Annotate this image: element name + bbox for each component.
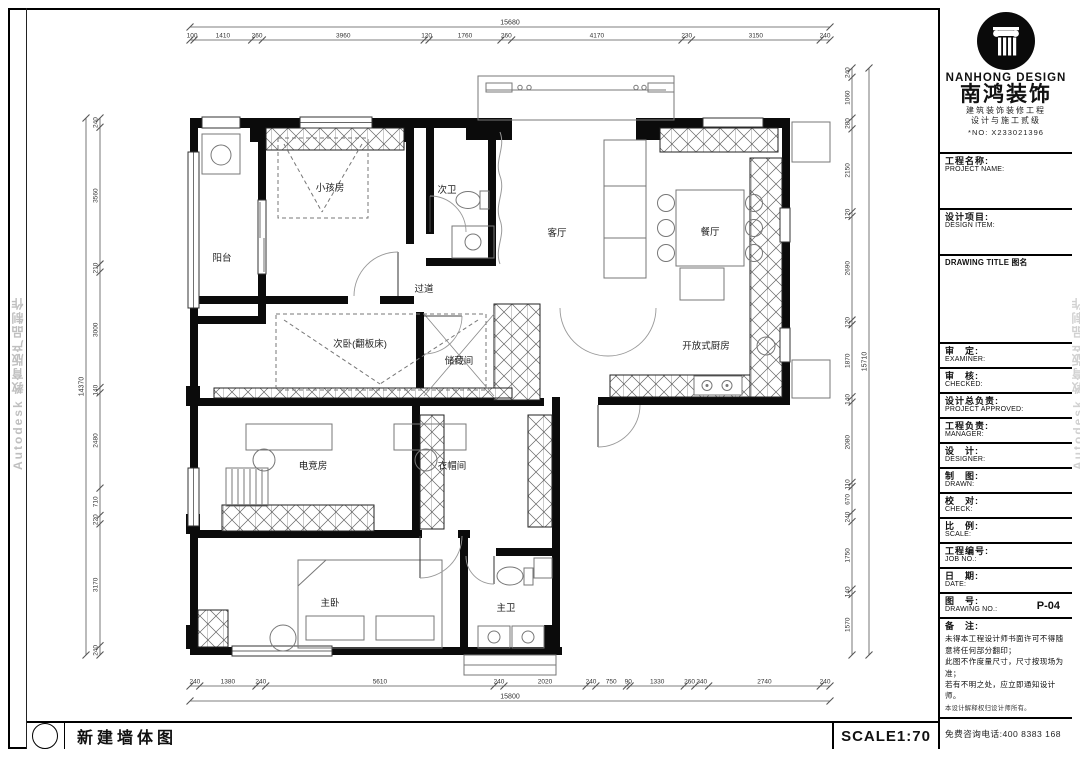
field-check: 校 对: CHECK: [940,494,1072,519]
room-label-bath1: 主卫 [496,602,516,614]
revision-circle-icon [32,723,58,749]
divider [64,723,65,749]
room-label-master: 主卧 [320,597,340,609]
dim-label: 3960 [336,33,351,40]
remarks-line: 未得本工程设计师书面许可不得随意将任何部分翻印； [945,633,1067,656]
remarks-title: 备 注: [945,621,1067,631]
dim-label: 240 [820,679,831,686]
dim-label: 240 [820,33,831,40]
room-label-storage: 储藏间 [445,355,474,367]
dim-label: 240 [845,67,852,78]
sheet-inner-rule [26,8,27,749]
field-label-en: MANAGER: [945,431,1067,439]
field-label-en: PROJECT APPROVED: [945,406,1067,414]
dim-label: 3560 [93,188,100,203]
dim-label: 4170 [590,33,605,40]
dim-label: 2690 [845,261,852,276]
dim-label: 2740 [757,679,772,686]
drawing-title: 新建墙体图 [77,724,832,748]
remarks-block: 备 注: 未得本工程设计师书面许可不得随意将任何部分翻印； 此图不作度量尺寸，尺… [940,619,1072,719]
dim-label: 240 [494,679,505,686]
field-label-en: CHECKED: [945,381,1067,389]
dim-label: 230 [681,33,692,40]
field-designer: 设 计: DESIGNER: [940,444,1072,469]
field-scale: 比 例: SCALE: [940,519,1072,544]
field-drawing-title: DRAWING TITLE 图名 [940,256,1072,344]
room-label-hallway: 过道 [414,283,434,295]
field-label-en: CHECK: [945,506,1067,514]
dim-label: 5610 [373,679,388,686]
dim-label: 2150 [845,163,852,178]
field-project-approved: 设计总负责: PROJECT APPROVED: [940,394,1072,419]
dim-label: 1870 [845,353,852,368]
dim-label: 670 [845,494,852,505]
cert-number: *NO: X233021396 [945,128,1067,137]
floor-plan: 阳台 小孩房 次卫 客厅 餐厅 过道 次卧(翻板床) 储藏间 开放式厨房 电竞房… [0,0,1080,757]
field-design-item: 设计项目: DESIGN ITEM: [940,210,1072,256]
dim-label: 1760 [458,33,473,40]
room-label-gaming: 电竞房 [299,460,328,472]
dim-label: 260 [252,33,263,40]
field-label-cn: 工程名称: [945,156,1067,166]
brand-block: NANHONG DESIGN 南鸿装饰 建筑装饰装修工程 设计与施工贰级 *NO… [940,8,1072,154]
field-checked: 审 核: CHECKED: [940,369,1072,394]
drawing-title-label: DRAWING TITLE 图名 [945,258,1067,267]
bottom-title-bar: 新建墙体图 SCALE1:70 [27,721,938,749]
field-label-cn: 校 对: [945,496,1067,506]
field-label-cn: 比 例: [945,521,1067,531]
dim-label: 15800 [500,694,520,701]
title-block: NANHONG DESIGN 南鸿装饰 建筑装饰装修工程 设计与施工贰级 *NO… [938,8,1072,749]
dim-label: 240 [255,679,266,686]
cert-line-1: 建筑装饰装修工程 [945,106,1067,116]
room-label-kitchen: 开放式厨房 [682,340,730,352]
remarks-line: 若有不明之处，应立即通知设计师。 [945,679,1067,702]
field-label-en: PROJECT NAME: [945,166,1067,174]
dim-label: 1570 [845,617,852,632]
drawing-no-value: P-04 [1037,600,1060,612]
dim-label: 2480 [93,433,100,448]
field-examiner: 审 定: EXAMINER: [940,344,1072,369]
dim-label: 240 [189,679,200,686]
window-midlines [194,123,373,652]
field-label-en: JOB NO.: [945,556,1067,564]
field-drawn: 制 图: DRAWN: [940,469,1072,494]
remarks-line: 此图不作度量尺寸，尺寸按现场为准； [945,656,1067,679]
dim-label: 1060 [845,90,852,105]
autodesk-watermark-left: Autodesk 教育版产品制作 [9,255,26,470]
phone-number: 免费咨询电话:400 8383 168 [945,728,1061,740]
phone-block: 免费咨询电话:400 8383 168 [940,719,1072,749]
dim-label: 240 [586,679,597,686]
nanhong-column-logo-icon [977,12,1035,70]
field-label-en: EXAMINER: [945,356,1067,364]
brand-name-cn: 南鸿装饰 [945,84,1067,106]
dim-label: 260 [684,679,695,686]
room-label-bedroom2: 次卧(翻板床) [333,338,387,350]
field-label-cn: 制 图: [945,471,1067,481]
dim-label: 3000 [93,322,100,337]
dim-label: 2080 [845,435,852,450]
room-label-balcony: 阳台 [212,252,231,264]
field-label-cn: 工程负责: [945,421,1067,431]
room-label-bath2: 次卫 [437,184,457,196]
dim-label: 750 [606,679,617,686]
field-label-cn: 日 期: [945,571,1067,581]
field-label-cn: 审 核: [945,371,1067,381]
field-label-cn: 设 计: [945,446,1067,456]
field-drawing-no: 图 号: DRAWING NO.: P-04 [940,594,1072,619]
field-label-en: DESIGN ITEM: [945,222,1067,230]
dim-label: 15680 [500,20,520,27]
field-label-cn: 审 定: [945,346,1067,356]
field-date: 日 期: DATE: [940,569,1072,594]
dim-label: 14370 [79,377,86,397]
column-icon [986,21,1026,61]
dim-label: 210 [93,262,100,273]
drawing-sheet: 阳台 小孩房 次卫 客厅 餐厅 过道 次卧(翻板床) 储藏间 开放式厨房 电竞房… [0,0,1080,757]
dim-label: 1750 [845,548,852,563]
dim-label: 15710 [862,352,869,372]
field-label-cn: 工程编号: [945,546,1067,556]
field-label-cn: 设计项目: [945,212,1067,222]
field-label-en: DESIGNER: [945,456,1067,464]
cert-line-2: 设计与施工贰级 [945,116,1067,126]
field-manager: 工程负责: MANAGER: [940,419,1072,444]
room-label-cloak: 衣帽间 [438,460,467,472]
dim-label: 240 [93,117,100,128]
dim-label: 1380 [221,679,236,686]
room-label-living: 客厅 [547,227,567,239]
field-label-en: DRAWN: [945,481,1067,489]
dim-label: 2020 [538,679,553,686]
field-job-no: 工程编号: JOB NO.: [940,544,1072,569]
dim-label: 280 [845,118,852,129]
dim-label: 710 [93,496,100,507]
dim-label: 1330 [650,679,665,686]
remarks-line: 本设计解释权归设计师所有。 [945,704,1067,713]
scale-label: SCALE1:70 [832,723,938,749]
room-label-kids: 小孩房 [316,182,345,194]
dim-label: 340 [696,679,707,686]
dim-label: 3170 [93,577,100,592]
dim-label: 240 [93,645,100,656]
field-label-cn: 设计总负责: [945,396,1067,406]
dim-label: 260 [501,33,512,40]
dim-label: 220 [93,514,100,525]
field-label-en: SCALE: [945,531,1067,539]
dim-label: 1410 [216,33,231,40]
room-label-dining: 餐厅 [700,226,720,238]
field-label-en: DATE: [945,581,1067,589]
dim-label: 240 [845,511,852,522]
field-project-name: 工程名称: PROJECT NAME: [940,154,1072,210]
dim-label: 3150 [749,33,764,40]
